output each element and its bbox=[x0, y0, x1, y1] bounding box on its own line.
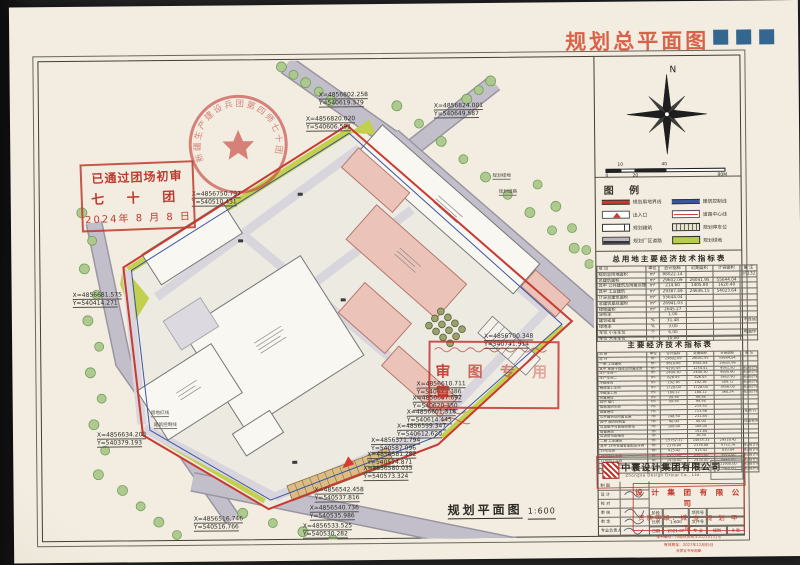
road-symbol bbox=[602, 237, 630, 245]
header-square-icon bbox=[713, 30, 728, 45]
scale-label: 10 bbox=[617, 163, 623, 168]
control-line-symbol bbox=[672, 198, 700, 203]
centerline-symbol bbox=[672, 210, 700, 218]
plan-label: 规划道路 bbox=[499, 189, 517, 196]
north-arrow-compass: N bbox=[620, 62, 713, 163]
legend-label: 规划绿地 bbox=[703, 236, 722, 243]
qualification-cert-stamp: 设 计 集 团 有 限 公 司 资质等级：城 乡 规 划 甲 级 证书编号：川自… bbox=[633, 483, 745, 531]
boundary-line-symbol bbox=[602, 199, 630, 204]
table-cell: (在地下) bbox=[741, 409, 758, 414]
plan-caption-scale: 1:600 bbox=[528, 506, 556, 519]
plan-label: 规划绿地 bbox=[492, 173, 510, 180]
land-indicator-table-section: 总用地主要经济技术指标表 项 目单位合计指标近期面积计容面积备 注规划总用地面积… bbox=[596, 251, 743, 338]
table-cell: (不含远期) bbox=[740, 317, 757, 323]
coordinate-label: X=4856542.458Y=540537.816 bbox=[314, 486, 363, 502]
table-cell: 24636.15 bbox=[686, 288, 713, 294]
main-indicator-table-section: 主要经济技术指标表 项 目单位合计指标近期面积计容面积备 注总 计m²29602… bbox=[597, 337, 744, 458]
table-cell: 按2倍计容 bbox=[741, 385, 758, 390]
table-cell: 29602.09 bbox=[659, 277, 686, 283]
sign-label: 校 对 bbox=[599, 500, 621, 508]
drawing-review-stamp: 审 图 专 用 章 bbox=[428, 341, 559, 410]
plan-label: 建筑控制线 bbox=[154, 422, 177, 429]
cert-stamp-line: 资质证书专用章 bbox=[634, 549, 744, 554]
coordinate-label: X=4856820.020Y=540606.591 bbox=[306, 115, 355, 131]
sign-label: 审 核 bbox=[599, 509, 621, 517]
table-cell: (地面停车位) bbox=[741, 329, 758, 335]
coordinate-label: X=4856540.736Y=540535.986 bbox=[310, 504, 359, 520]
approval-line1: 已通过团场初审 bbox=[82, 166, 193, 187]
sign-label: 制 图 bbox=[598, 482, 620, 490]
coordinate-label: X=4856634.203Y=540379.193 bbox=[97, 431, 146, 447]
round-official-seal: 新疆生产建设兵团第四师七十团 bbox=[190, 96, 287, 193]
table-cell: 按2倍计容 bbox=[741, 380, 758, 385]
header-square-icon bbox=[759, 29, 774, 44]
table-cell: 29387.49 bbox=[659, 289, 686, 295]
north-label: N bbox=[669, 65, 676, 75]
table1: 项 目单位合计指标近期面积计容面积备 注规划总用地面积m²88022.14(约1… bbox=[596, 265, 743, 343]
title-block: 中寰设计集团有限公司 Zhongxa Design Group Co., Ltd… bbox=[598, 457, 745, 536]
legend-label: 建筑控制线 bbox=[703, 197, 727, 204]
sign-label: 审 定 bbox=[599, 518, 621, 526]
coordinate-label: X=4856516.746Y=540516.766 bbox=[194, 515, 243, 531]
building-symbol bbox=[602, 224, 630, 232]
coordinate-label: X=4856681.575Y=540414.271 bbox=[73, 291, 122, 307]
cert-stamp-line: 设 计 集 团 有 限 公 司 bbox=[634, 487, 744, 509]
parking-symbol bbox=[672, 223, 700, 231]
table-cell: (约132.03亩) bbox=[740, 271, 757, 277]
table-cell: 55644.04 bbox=[713, 277, 740, 283]
header-square-icon bbox=[736, 29, 751, 44]
coordinate-label: X=4856750.797Y=540510.431 bbox=[192, 190, 241, 206]
table-cell: 88022.14 bbox=[659, 271, 686, 277]
coordinate-label: X=4856802.258Y=540619.379 bbox=[319, 91, 368, 107]
plan-label: 用地红线 bbox=[151, 410, 169, 417]
table-cell: 按2倍计容 bbox=[741, 365, 758, 370]
sign-label: 设 计 bbox=[599, 491, 621, 499]
compass-section: N 10 40 0 20 bbox=[594, 56, 741, 178]
legend-label: 规划停车位 bbox=[703, 223, 727, 230]
table-cell: 按2倍计容 bbox=[742, 443, 759, 448]
legend-section: 图 例 规划用地界线 建筑控制线 出入口 道路中心线 规划建筑 规划停车位 规划… bbox=[596, 177, 743, 252]
table1-title: 总用地主要经济技术指标表 bbox=[596, 251, 742, 266]
coordinate-label: X=4856824.001Y=540649.587 bbox=[434, 102, 483, 118]
cert-stamp-line: 资质等级：城 乡 规 划 甲 级 bbox=[634, 512, 744, 532]
cert-stamp-line: 有效期至：2027年12月05日 bbox=[634, 542, 744, 548]
table-cell: 54023.64 bbox=[713, 288, 740, 294]
approval-line3: 2024年 8 月 8 日 bbox=[83, 207, 193, 226]
plan-caption: 规划平面图 1:600 bbox=[412, 498, 592, 519]
legend-label: 规划用地界线 bbox=[633, 198, 662, 205]
approval-line2: 七 十 团 bbox=[82, 185, 193, 208]
data-table: 项 目单位合计指标近期面积计容面积备 注规划总用地面积m²88022.14(约1… bbox=[596, 264, 758, 342]
scanned-page: 规划总平面图 bbox=[9, 0, 800, 564]
legend-label: 道路中心线 bbox=[703, 210, 727, 217]
review-stamp-big-text: 审 图 专 用 章 bbox=[435, 361, 557, 404]
coordinate-label: X=4856533.525Y=540530.282 bbox=[303, 522, 352, 538]
table2-title: 主要经济技术指标表 bbox=[597, 337, 743, 352]
right-column: N 10 40 0 20 bbox=[593, 56, 745, 536]
approval-stamp-box: 已通过团场初审 七 十 团 2024年 8 月 8 日 bbox=[79, 160, 195, 232]
plan-caption-text: 规划平面图 bbox=[448, 503, 523, 520]
table-cell: 26041.95 bbox=[686, 277, 713, 283]
coordinate-label: X=4856580.035Y=540573.324 bbox=[363, 465, 412, 481]
table-cell: 26941.03 bbox=[659, 300, 686, 306]
legend-label: 出入口 bbox=[633, 211, 647, 218]
entrance-symbol bbox=[602, 211, 630, 219]
legend-label: 规划厂区道路 bbox=[633, 237, 662, 244]
scale-label: 40 bbox=[661, 162, 667, 167]
table-cell: 按2倍计容 bbox=[741, 390, 758, 395]
cert-stamp-line: 证书编号：川自然资规字20210131号 bbox=[634, 534, 744, 540]
green-symbol bbox=[672, 236, 700, 244]
legend-label: 规划建筑 bbox=[633, 224, 652, 231]
table-cell: 按2倍计容 bbox=[741, 370, 758, 375]
review-stamp-small-text bbox=[433, 346, 556, 356]
table-cell: (成品板房) bbox=[741, 419, 758, 424]
table-cell: 55644.04 bbox=[659, 295, 686, 301]
table-cell: 按2倍计容 bbox=[741, 375, 758, 380]
sign-label: 专业负责人 bbox=[599, 527, 621, 535]
